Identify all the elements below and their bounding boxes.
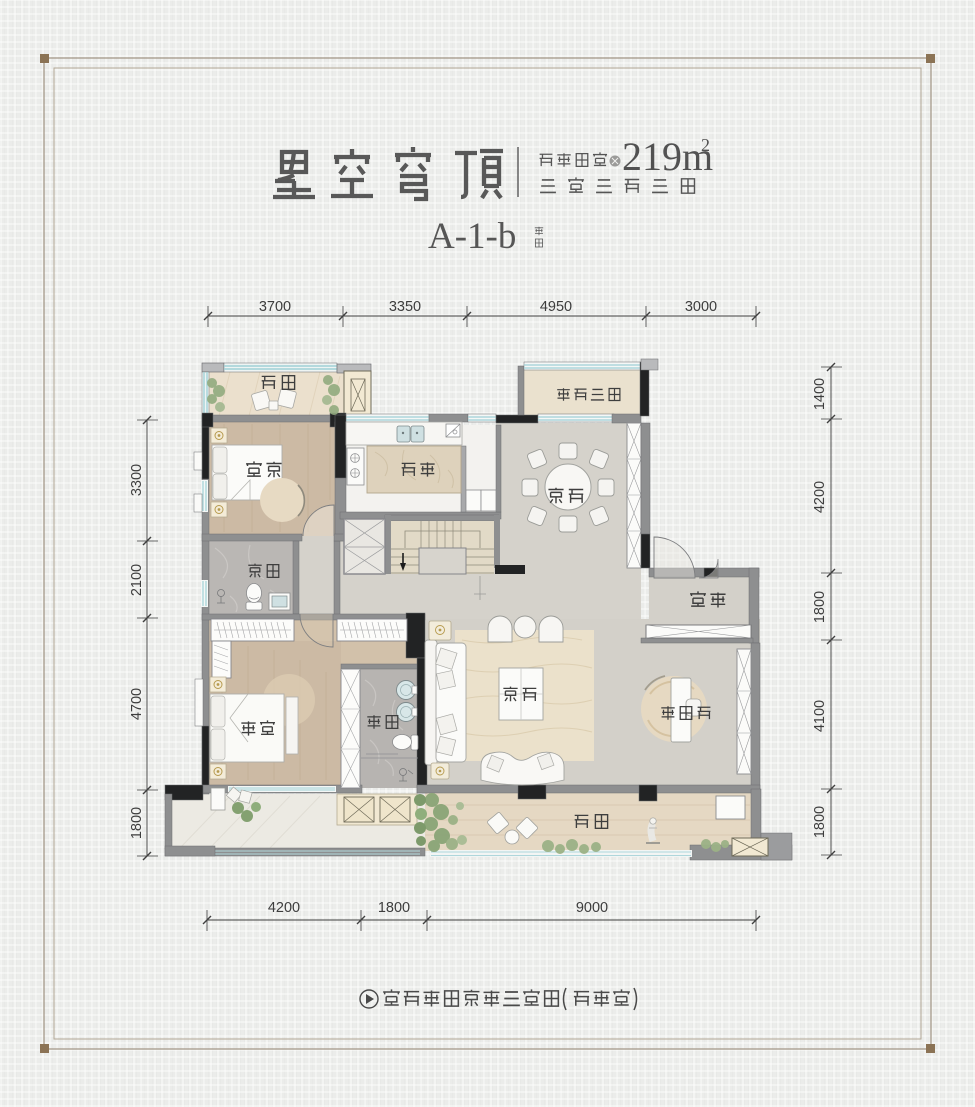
svg-text:A-1-b: A-1-b <box>428 216 516 257</box>
svg-text:4200: 4200 <box>268 900 300 916</box>
svg-text:1400: 1400 <box>812 378 828 410</box>
svg-text:4950: 4950 <box>540 299 572 315</box>
svg-text:2100: 2100 <box>129 564 145 596</box>
svg-text:9000: 9000 <box>576 900 608 916</box>
svg-text:1800: 1800 <box>129 807 145 839</box>
svg-text:3000: 3000 <box>685 299 717 315</box>
svg-text:3300: 3300 <box>129 464 145 496</box>
svg-text:4700: 4700 <box>129 688 145 720</box>
svg-text:3350: 3350 <box>389 299 421 315</box>
svg-text:1800: 1800 <box>812 806 828 838</box>
svg-text:2: 2 <box>701 135 710 155</box>
svg-text:4100: 4100 <box>812 700 828 732</box>
svg-text:1800: 1800 <box>812 591 828 623</box>
svg-text:1800: 1800 <box>378 900 410 916</box>
svg-text:4200: 4200 <box>812 481 828 513</box>
svg-text:219m: 219m <box>622 134 713 179</box>
svg-text:3700: 3700 <box>259 299 291 315</box>
